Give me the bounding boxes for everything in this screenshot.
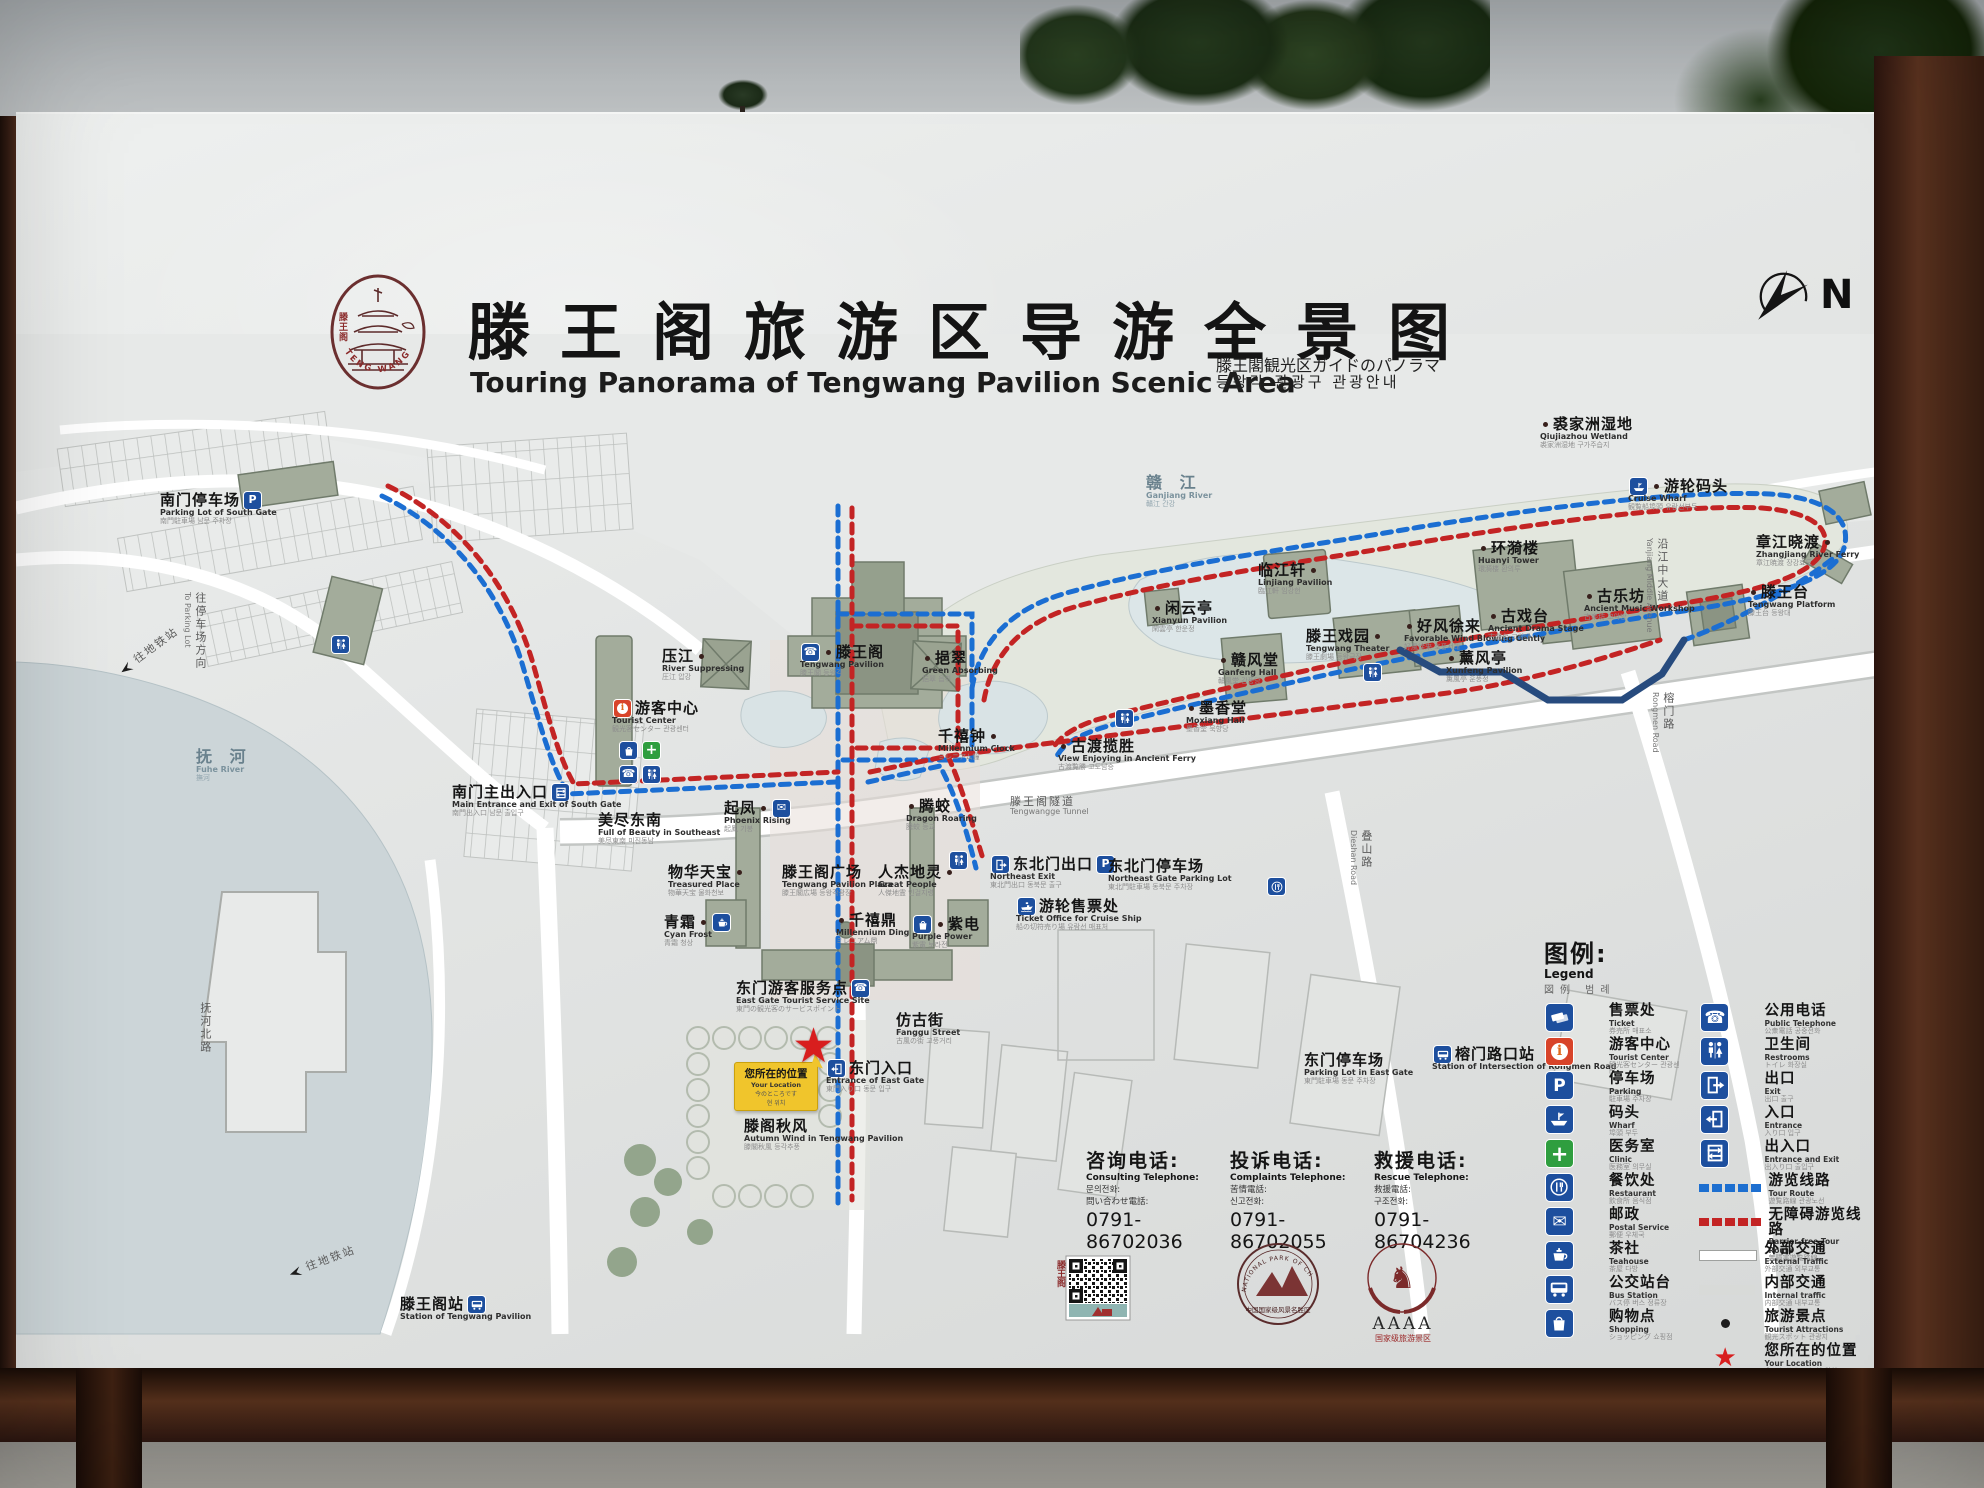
legend-zh: 出入口 (1764, 1140, 1839, 1155)
label-zh: 游客中心 (635, 700, 699, 717)
treasured-place-label: 物华天宝Treasured Place物華天宝 물화천보 (668, 864, 745, 898)
label-zh: 抚河北路 (199, 1002, 212, 1054)
telephone-l4: 신고전화: (1230, 1195, 1358, 1207)
dirarrow-icon (114, 657, 138, 681)
legend-item-right-8: 内部交通Internal traffic内部交通 내부교통 (1699, 1276, 1864, 1310)
legend-item-left-5: 餐饮处Restaurant飲食所 음식점 (1544, 1174, 1681, 1208)
legend-column-left: 售票处Ticket券売所 매표소i游客中心Tourist Center観光客セン… (1544, 1004, 1681, 1378)
ticket-icon (1546, 1004, 1573, 1031)
legend-column-right: ☎公用电话Public Telephone公衆電話 공중전화卫生间Restroo… (1699, 1004, 1864, 1378)
star-swatch: ★ (1699, 1344, 1757, 1371)
legend-sub: 券売所 매표소 (1609, 1028, 1656, 1036)
legend-title-sub: 図例 범례 (1544, 981, 1864, 996)
legend-item-right-3: 入口Entrance入り口 입구 (1699, 1106, 1864, 1140)
poi-dot (839, 918, 844, 923)
legend-zh: 医务室 (1609, 1140, 1656, 1155)
great-people-label: 人杰地灵Great People人傑地霊 인걸지령 (878, 864, 955, 898)
ne-parking-label: 东北门停车场Northeast Gate Parking Lot東北門駐車場 동… (1108, 858, 1232, 892)
poi-dot (1189, 706, 1194, 711)
xianyun-pavilion-label: 闲云亭Xianyun Pavilion閑雲亭 한운정 (1152, 600, 1227, 634)
phone-icon: ☎ (852, 980, 869, 997)
poi-dot (1825, 540, 1830, 545)
restroom-icon (1116, 710, 1133, 727)
south-main-entrance-label: 南门主出入口Main Entrance and Exit of South Ga… (452, 784, 621, 818)
label-sub: 観光客センター 관광센터 (612, 726, 699, 734)
legend-sub: 埠頭 부두 (1609, 1130, 1640, 1138)
telephone-en: Complaints Telephone: (1230, 1173, 1358, 1183)
autumn-wind-label: 滕阁秋风Autumn Wind in Tengwang Pavilion滕閣秋風… (744, 1118, 903, 1152)
millennium-ding-label: 千禧鼎Millennium Dingミレニアム鼎 (836, 912, 909, 946)
label-sub: 滕王劇場 등왕극장 (1306, 654, 1389, 662)
label-zh: 挹翠 (935, 650, 967, 667)
ganfeng-hall-label: 赣风堂Ganfeng Hall贛風堂 감풍당 (1218, 652, 1279, 686)
wood-frame-left (0, 116, 16, 1370)
firstaid-icon: + (1546, 1140, 1573, 1167)
legend-sub: 出口 출구 (1764, 1096, 1795, 1104)
label-zh: 好风徐来 (1417, 618, 1481, 635)
label-sub: 贛江 간강 (1146, 501, 1212, 509)
legend-sub: 入り口 입구 (1764, 1130, 1802, 1138)
qiujiazhou-wetland-label: 裘家洲湿地Qiujiazhou Wetland裘家洲湿地 구가주습지 (1540, 416, 1633, 450)
legend-item-right-9: 旅游景点Tourist Attractions観光スポット 관광지 (1699, 1310, 1864, 1344)
south-gate-parking-label: 南门停车场PParking Lot of South Gate南門駐車場 남문 … (160, 492, 277, 526)
restroom-chip-4 (330, 636, 351, 653)
teahouse-icon (713, 914, 730, 931)
telephone-zh: 救援电话: (1374, 1146, 1502, 1173)
restroom-icon (1364, 664, 1381, 681)
telephone-l3: 救援電話: (1374, 1183, 1502, 1195)
ganjiang-river-label: 赣 江Ganjiang River贛江 간강 (1146, 474, 1212, 509)
poi-dot (1061, 744, 1066, 749)
east-gate-service-label: 东门游客服务点☎East Gate Tourist Service Site東門… (736, 980, 871, 1014)
legend-sub: ショッピング 쇼핑점 (1609, 1334, 1673, 1342)
ne-exit-label: 东北门出口PNortheast Exit東北門出口 동북문 출구 (990, 856, 1116, 890)
label-zh: 古乐坊 (1597, 588, 1645, 605)
label-zh: 东门入口 (849, 1060, 913, 1077)
label-zh: 往停车场方向 (194, 592, 207, 670)
cruise-wharf-label: 游轮码头Cruise Wharf観覧船埠頭 유람선부두 (1628, 478, 1728, 512)
poi-dot (1407, 624, 1412, 629)
label-sub: 青霜 청상 (664, 940, 732, 948)
legend-item-right-1: 卫生间Restroomsトイレ 화장실 (1699, 1038, 1864, 1072)
shopping-icon (914, 916, 931, 933)
label-zh: 闲云亭 (1165, 600, 1213, 617)
label-zh: 古渡揽胜 (1071, 738, 1135, 755)
legend-item-left-9: 购物点Shoppingショッピング 쇼핑점 (1544, 1310, 1681, 1344)
legend-item-left-6: ✉邮政Postal Service郵便 우체국 (1544, 1208, 1681, 1242)
label-zh: 古戏台 (1501, 608, 1549, 625)
poi-dot (1375, 634, 1380, 639)
label-zh: 薰风亭 (1459, 650, 1507, 667)
legend-zh: 茶社 (1609, 1242, 1649, 1257)
restroom-chip-3 (948, 852, 969, 869)
poi-dot (1654, 484, 1659, 489)
label-sub: 観覧船埠頭 유람선부두 (1628, 504, 1728, 512)
label-sub: 東門の観光客のサービスポイント (736, 1006, 871, 1014)
legend-item-left-3: 码头Wharf埠頭 부두 (1544, 1106, 1681, 1140)
poi-dot (826, 650, 831, 655)
yicui-label: 挹翠Green Absorbing挹翠 읍취 (922, 650, 998, 684)
legend-title: 图例: (1544, 934, 1864, 969)
poi-dot (1481, 546, 1486, 551)
dieshan-road-label: 叠山路Dieshan Road (1348, 830, 1375, 885)
label-zh: 仿古街 (896, 1012, 944, 1029)
entrance-icon (1701, 1106, 1728, 1133)
horse-emblem-icon: ♞ (1389, 1261, 1416, 1296)
label-sub: 東門入り口 동문 입구 (826, 1086, 924, 1094)
legend-sub: 茶屋 다방 (1609, 1266, 1649, 1274)
label-zh: 赣 江 (1146, 474, 1202, 492)
label-sub: 挹翠 읍취 (922, 676, 998, 684)
restaurant-chip (1266, 878, 1287, 895)
label-zh: 千禧鼎 (849, 912, 897, 929)
label-zh: 东北门停车场 (1108, 858, 1204, 875)
label-en: Yanjiang Middle Avenue (1644, 538, 1653, 633)
legend-sub: トイレ 화장실 (1764, 1062, 1811, 1070)
label-zh: 紫电 (948, 916, 980, 933)
east-gate-parking-label: 东门停车场Parking Lot in East Gate東門駐車場 동문 주차… (1304, 1052, 1413, 1086)
to-metro-upper-label: 往地铁站 (112, 624, 183, 682)
telephone-l3: 문의전화: (1086, 1183, 1214, 1195)
restroom-chip-2 (1362, 664, 1383, 681)
entranceexit-icon (552, 784, 569, 801)
label-zh: 东门游客服务点 (736, 980, 848, 997)
legend-item-left-4: +医务室Clinic医務室 의무실 (1544, 1140, 1681, 1174)
tengwang-theater-label: 滕王戏园Tengwang Theater滕王劇場 등왕극장 (1306, 628, 1389, 662)
label-zh: 青霜 (664, 914, 696, 931)
yajiang-label: 压江River Suppressing圧江 압강 (662, 648, 744, 682)
busstop-icon (1434, 1046, 1451, 1063)
poi-dot (761, 806, 766, 811)
label-sub: 滕王閣 등왕각 (800, 670, 884, 678)
label-zh: 南门停车场 (160, 492, 240, 509)
label-zh: 墨香堂 (1199, 700, 1247, 717)
mail-icon: ✉ (773, 800, 790, 817)
music-workshop-label: 古乐坊Ancient Music Workshop古楽坊 고악방 (1584, 588, 1695, 622)
phone-icon: ☎ (802, 644, 819, 661)
tourist-center-label: i游客中心Tourist Center観光客センター 관광센터 (612, 700, 699, 734)
restaurant-icon (1546, 1174, 1573, 1201)
poi-dot (991, 734, 996, 739)
ancient-stage-label: 古戏台Ancient Drama Stage古戯台 고희대 (1488, 608, 1584, 642)
legend-zh: 出口 (1764, 1072, 1795, 1087)
label-sub: 章江暁渡 장강효도 (1756, 560, 1859, 568)
legend-item-left-2: P停车场Parking駐車場 주차장 (1544, 1072, 1681, 1106)
exit-icon (1701, 1072, 1728, 1099)
park-seal-zh-text: 中国国家级风景名胜区 (1246, 1305, 1312, 1314)
label-sub: 船の切符売り場 유람선 매표처 (1016, 924, 1142, 932)
legend-sub: 出入り口 출입구 (1764, 1164, 1839, 1172)
legend-item-right-6: 无障碍游览线路Barrier-free Tour Route無障害遊覧路線 (1699, 1208, 1864, 1242)
rongmen-road-label: 榕门路Rongmen Road (1650, 692, 1677, 753)
legend-sub: 駐車場 주차장 (1609, 1096, 1656, 1104)
fuhe-river-label: 抚 河Fuhe River撫河 (196, 748, 252, 783)
qifeng-label: 起凤✉Phoenix Rising起鳳 기봉 (724, 800, 792, 834)
legend-sub: 外部交通 외부교통 (1764, 1266, 1828, 1274)
legend-zh: 购物点 (1609, 1310, 1673, 1325)
restroom-icon (643, 766, 660, 783)
wood-post-left (76, 1368, 142, 1488)
your-location-ja: 今のところです (739, 1089, 813, 1098)
wood-post-right (1826, 1368, 1892, 1488)
cruise-icon (1018, 898, 1035, 915)
legend-item-right-2: 出口Exit出口 출구 (1699, 1072, 1864, 1106)
poi-dot (1221, 658, 1226, 663)
label-zh: 裘家洲湿地 (1553, 416, 1633, 433)
label-sub: 撫河 (196, 775, 252, 783)
poi-dot (1491, 614, 1496, 619)
label-en: Station of Tengwang Pavilion (400, 1313, 531, 1322)
tengwangge-station-label: 滕王阁站Station of Tengwang Pavilion (400, 1296, 531, 1322)
label-zh: 东北门出口 (1013, 856, 1093, 873)
label-zh: 滕王戏园 (1306, 628, 1370, 645)
tengwang-plaza-label: 滕王阁广场Tengwang Pavilion Plaza滕王閣広場 등왕각광장 (782, 864, 893, 898)
label-zh: 滕王台 (1761, 584, 1809, 601)
legend-zh: 内部交通 (1764, 1276, 1826, 1291)
restroom-icon (332, 636, 349, 653)
label-zh: 叠山路 (1360, 830, 1373, 869)
aaaa-seal: ♞ (1368, 1244, 1436, 1312)
telephone-en: Consulting Telephone: (1086, 1173, 1214, 1183)
firstaid-icon: + (643, 742, 660, 759)
label-sub: 人傑地霊 인걸지령 (878, 890, 955, 898)
label-sub: 閑雲亭 한운정 (1152, 626, 1227, 634)
tengwang-terrace-label: 滕王台Tengwang Platform滕王台 등왕대 (1748, 584, 1835, 618)
tengjiao-label: 腾蛟Dragon Roaring騰蛟 등교 (906, 798, 977, 832)
label-zh: 章江晓渡 (1756, 534, 1820, 551)
east-gate-entrance-label: 东门入口Entrance of East Gate東門入り口 동문 입구 (826, 1060, 924, 1094)
poi-dot (1449, 656, 1454, 661)
qr-code (1066, 1256, 1130, 1320)
millennium-clock-label: 千禧钟Millennium Clockミレニアム鐘 (938, 728, 1015, 762)
label-zh: 游轮售票处 (1039, 898, 1119, 915)
mail-icon: ✉ (1546, 1208, 1573, 1235)
fanggu-street-label: 仿古街Fanggu Street古風の街 고풍거리 (896, 1012, 960, 1046)
road-ext-swatch (1699, 1242, 1757, 1269)
legend-zh: 公交站台 (1609, 1276, 1671, 1291)
label-en: Rongmen Road (1650, 692, 1659, 753)
label-zh: 千禧钟 (938, 728, 986, 745)
label-zh: 腾蛟 (919, 798, 951, 815)
label-sub: 東北門駐車場 동북문 주차장 (1108, 884, 1232, 892)
poi-dot-swatch (1699, 1310, 1757, 1337)
label-sub: ミレニアム鼎 (836, 938, 909, 946)
label-zh: 东门停车场 (1304, 1052, 1384, 1069)
label-sub: 南門出入口 남문 출입구 (452, 810, 621, 818)
legend-sub: 観光スポット 관광지 (1764, 1334, 1843, 1342)
legend-zh: 旅游景点 (1764, 1310, 1843, 1325)
zhangjiang-ferry-label: 章江晓渡Zhangjiang River Ferry章江暁渡 장강효도 (1756, 534, 1859, 568)
poi-dot (1751, 590, 1756, 595)
restroom-icon (950, 852, 967, 869)
legend-item-right-0: ☎公用电话Public Telephone公衆電話 공중전화 (1699, 1004, 1864, 1038)
label-zh: 滕王阁 (836, 644, 884, 661)
label-sub: 滕王閣広場 등왕각광장 (782, 890, 893, 898)
label-sub: 古楽坊 고악방 (1584, 614, 1695, 622)
label-en: To Parking Lot (182, 592, 191, 670)
dirarrow-icon (284, 1262, 306, 1284)
label-sub: ミレニアム鐘 (938, 754, 1015, 762)
legend-zh: 无障碍游览线路 (1768, 1208, 1864, 1237)
label-zh: 人杰地灵 (878, 864, 942, 881)
label-zh: 榕门路口站 (1455, 1046, 1535, 1063)
moxiang-hall-label: 墨香堂Moxiang Hall墨香堂 묵향당 (1186, 700, 1247, 734)
aaaa-grade-caption: 国家级旅游景区 (1358, 1333, 1448, 1344)
legend-item-right-7: 外部交通External Traffic外部交通 외부교통 (1699, 1242, 1864, 1276)
shopping-icon (1546, 1310, 1573, 1337)
telephone-en: Rescue Telephone: (1374, 1173, 1502, 1183)
poi-dot (1311, 568, 1316, 573)
label-sub: 環漪楼 환의루 (1478, 566, 1539, 574)
legend-zh: 售票处 (1609, 1004, 1656, 1019)
label-sub: 滕閣秋風 등각추풍 (744, 1144, 903, 1152)
poi-dot (909, 804, 914, 809)
busstop-icon (468, 1296, 485, 1313)
label-en: Dieshan Road (1348, 830, 1357, 885)
label-zh: 赣风堂 (1231, 652, 1279, 669)
label-zh: 物华天宝 (668, 864, 732, 881)
cruise-ticket-label: 游轮售票处Ticket Office for Cruise Ship船の切符売り… (1016, 898, 1142, 932)
label-en: Tengwangge Tunnel (1010, 808, 1089, 817)
cyan-frost-label: 青霜Cyan Frost青霜 청상 (664, 914, 732, 948)
tengwang-pavilion-label: ☎滕王阁Tengwang Pavilion滕王閣 등왕각 (800, 644, 884, 678)
legend-sub: バス停 버스 정류장 (1609, 1300, 1671, 1308)
legend-zh: 您所在的位置 (1764, 1344, 1857, 1359)
label-sub: 薫風亭 훈풍정 (1446, 676, 1522, 684)
wood-frame-bottom (0, 1368, 1984, 1442)
label-sub: 墨香堂 묵향당 (1186, 726, 1247, 734)
wharf-icon (1546, 1106, 1573, 1133)
label-sub: 東門駐車場 동문 주차장 (1304, 1078, 1413, 1086)
your-location-star-icon (792, 1022, 835, 1070)
route-red-swatch (1699, 1208, 1761, 1235)
fuhebei-road-label: 抚河北路 (196, 1002, 214, 1054)
legend-item-left-8: 公交站台Bus Stationバス停 버스 정류장 (1544, 1276, 1681, 1310)
poi-dot (737, 870, 742, 875)
poi-dot (1543, 422, 1548, 427)
huanyi-tower-label: 环漪楼Huanyi Tower環漪楼 환의루 (1478, 540, 1539, 574)
legend-zh: 外部交通 (1764, 1242, 1828, 1257)
legend-zh: 停车场 (1609, 1072, 1656, 1087)
label-zh: 往地铁站 (132, 626, 181, 667)
label-sub: 物華天宝 물화천보 (668, 890, 745, 898)
xunfeng-pavilion-label: 薰风亭Xunfeng Pavilion薫風亭 훈풍정 (1446, 650, 1522, 684)
restaurant-icon (1268, 878, 1285, 895)
legend-sub: 公衆電話 공중전화 (1764, 1028, 1836, 1036)
label-sub: 圧江 압강 (662, 674, 744, 682)
label-zh: 抚 河 (196, 748, 252, 766)
legend-item-left-1: i游客中心Tourist Center観光客センター 관광센터 (1544, 1038, 1681, 1072)
label-zh: 环漪楼 (1491, 540, 1539, 557)
label-zh: 往地铁站 (304, 1245, 357, 1274)
wood-frame-right (1874, 56, 1984, 1376)
aaaa-grade: AAAA (1358, 1314, 1448, 1334)
yanjiang-avenue-label: 沿江中大道Yanjiang Middle Avenue (1644, 538, 1671, 633)
badges: NATIONAL PARK OF CHINA 中国国家级风景名胜区 ♞ 滕王阁 … (1040, 1230, 1480, 1360)
exit-icon (992, 856, 1009, 873)
legend-zh: 餐饮处 (1609, 1174, 1656, 1189)
tourist-center-services-2: ☎ (618, 766, 662, 783)
phone-icon: ☎ (1701, 1004, 1728, 1031)
legend-zh: 邮政 (1609, 1208, 1669, 1223)
entranceexit-icon (1701, 1140, 1728, 1167)
ground (0, 1442, 1984, 1488)
legend-item-left-7: 茶社Teahouse茶屋 다방 (1544, 1242, 1681, 1276)
photo-of-map-signboard: TENG WANG GE 滕王阁 滕王阁旅游区导游全景图 Touring Pan… (0, 0, 1984, 1488)
tunnel-label: 滕王阁隧道Tengwangge Tunnel (1010, 796, 1089, 817)
poi-dot (938, 922, 943, 927)
poi-dot (699, 654, 704, 659)
restroom-chip-1 (1114, 710, 1135, 727)
label-zh: 滕王阁站 (400, 1296, 464, 1313)
label-zh: 起凤 (724, 800, 756, 817)
purple-power-label: 紫电Purple Power紫電 보라전 (912, 916, 980, 950)
legend-sub: 医務室 의무실 (1609, 1164, 1656, 1172)
busstop-icon (1546, 1276, 1573, 1303)
legend: 图例: Legend 図例 범례 售票处Ticket券売所 매표소i游客中心To… (1544, 934, 1864, 1378)
parking-icon: P (1546, 1072, 1573, 1099)
legend-zh: 卫生间 (1764, 1038, 1811, 1053)
touristcenter-icon: i (614, 700, 631, 717)
telephone-l3: 苦情電話: (1230, 1183, 1358, 1195)
beauty-southeast-label: 美尽东南Full of Beauty in Southeast美尽東南 미진동남 (598, 812, 720, 846)
teahouse-icon (1546, 1242, 1573, 1269)
label-sub: 起鳳 기봉 (724, 826, 792, 834)
shopping-icon (620, 742, 637, 759)
legend-item-right-5: 游览线路Tour Route遊覧路線 관광노선 (1699, 1174, 1864, 1208)
label-zh: 游轮码头 (1664, 478, 1728, 495)
label-zh: 美尽东南 (598, 812, 662, 829)
label-sub: 南門駐車場 남문 주차장 (160, 518, 277, 526)
label-sub: 贛風堂 감풍당 (1218, 678, 1279, 686)
route-blue-swatch (1699, 1174, 1761, 1201)
label-zh: 南门主出入口 (452, 784, 548, 801)
label-sub: 臨江軒 임강헌 (1258, 588, 1332, 596)
your-location-ko: 현 위치 (739, 1098, 813, 1107)
wharf-icon (1630, 478, 1647, 495)
legend-zh: 码头 (1609, 1106, 1640, 1121)
touristcenter-icon: i (1546, 1038, 1573, 1065)
label-zh: 滕阁秋风 (744, 1118, 808, 1135)
phone-icon: ☎ (620, 766, 637, 783)
tourist-center-services: + (618, 742, 662, 759)
telephone-l4: 問い合わせ電話: (1086, 1195, 1214, 1207)
label-sub: 滕王台 등왕대 (1748, 610, 1835, 618)
telephone-zh: 投诉电话: (1230, 1146, 1358, 1173)
qr-caption: 滕王阁 (1054, 1260, 1067, 1287)
legend-sub: 飲食所 음식점 (1609, 1198, 1656, 1206)
poi-dot (701, 920, 706, 925)
poi-dot (1155, 606, 1160, 611)
label-zh: 临江轩 (1258, 562, 1306, 579)
legend-item-left-0: 售票处Ticket券売所 매표소 (1544, 1004, 1681, 1038)
poi-dot (1587, 594, 1592, 599)
label-zh: 滕王阁广场 (782, 864, 862, 881)
label-zh: 榕门路 (1662, 692, 1675, 731)
label-zh: 压江 (662, 648, 694, 665)
label-sub: 紫電 보라전 (912, 942, 980, 950)
label-sub: 裘家洲湿地 구가주습지 (1540, 442, 1633, 450)
legend-zh: 游览线路 (1768, 1174, 1830, 1189)
telephone-zh: 咨询电话: (1086, 1146, 1214, 1173)
legend-sub: 遊覧路線 관광노선 (1768, 1198, 1830, 1206)
label-sub: 古渡覧勝 고도남승 (1058, 764, 1196, 772)
ancient-ferry-view-label: 古渡揽胜View Enjoying in Ancient Ferry古渡覧勝 고… (1058, 738, 1196, 772)
legend-item-right-4: 出入口Entrance and Exit出入り口 출입구 (1699, 1140, 1864, 1174)
legend-zh: 游客中心 (1609, 1038, 1681, 1053)
poi-dot (925, 656, 930, 661)
legend-sub: 郵便 우체국 (1609, 1232, 1669, 1240)
